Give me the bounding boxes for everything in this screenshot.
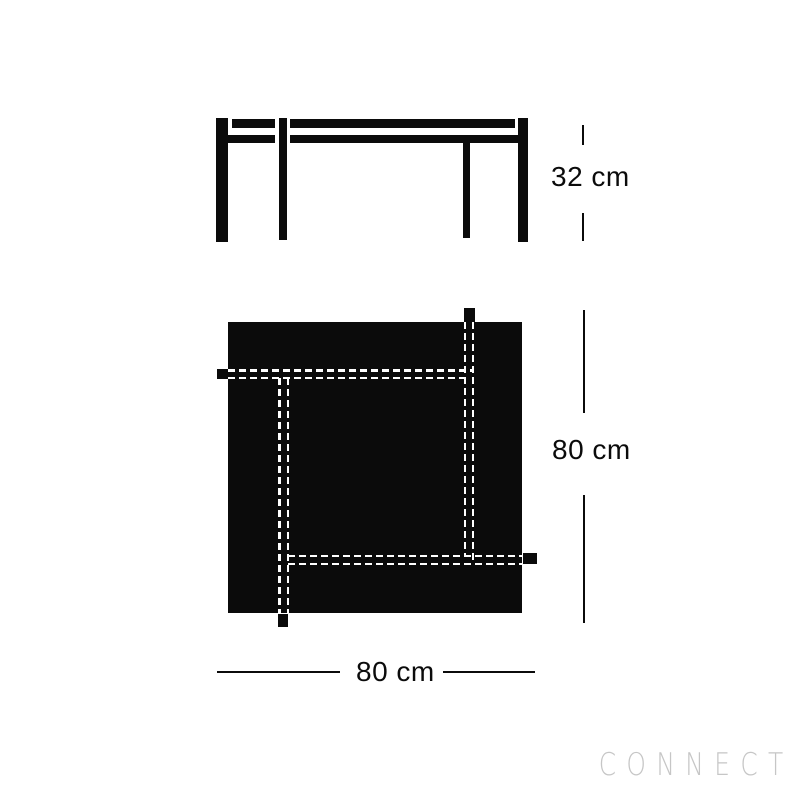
frame-top-edge-inner [228, 377, 466, 380]
depth-dim-tick-top [583, 310, 585, 413]
side-right-leg [518, 118, 528, 242]
leg-tab-bottom [278, 614, 288, 627]
height-dim-label: 32 cm [551, 163, 630, 191]
frame-bottom-edge-inner [288, 555, 522, 558]
frame-right-edge-outer [472, 322, 475, 563]
width-dim-tick-left [217, 671, 340, 673]
frame-left-edge-outer [278, 378, 281, 613]
frame-top-edge-outer [228, 369, 474, 372]
frame-left-edge-inner [287, 378, 290, 613]
side-tabletop-right [290, 119, 515, 128]
leg-tab-left [217, 369, 228, 379]
height-dim-tick-top [582, 125, 584, 145]
watermark-logo: CONNECT [599, 747, 794, 783]
side-apron-left [228, 135, 275, 143]
frame-bottom-edge-outer [288, 563, 522, 566]
depth-dim-label: 80 cm [552, 436, 631, 464]
side-left-leg [216, 118, 228, 242]
side-rear-leg [463, 143, 470, 238]
width-dim-tick-right [443, 671, 535, 673]
leg-tab-top [464, 308, 475, 322]
frame-right-edge-inner [464, 322, 467, 555]
height-dim-tick-bottom [582, 213, 584, 241]
dimension-diagram: 32 cm 80 cm 80 cm CONNECT [0, 0, 800, 800]
plan-tabletop [228, 322, 522, 613]
leg-tab-right [523, 553, 537, 564]
side-mid-leg [279, 118, 287, 240]
side-apron-right [290, 135, 518, 143]
depth-dim-tick-bottom [583, 495, 585, 623]
side-tabletop-left [232, 119, 275, 128]
width-dim-label: 80 cm [356, 658, 435, 686]
